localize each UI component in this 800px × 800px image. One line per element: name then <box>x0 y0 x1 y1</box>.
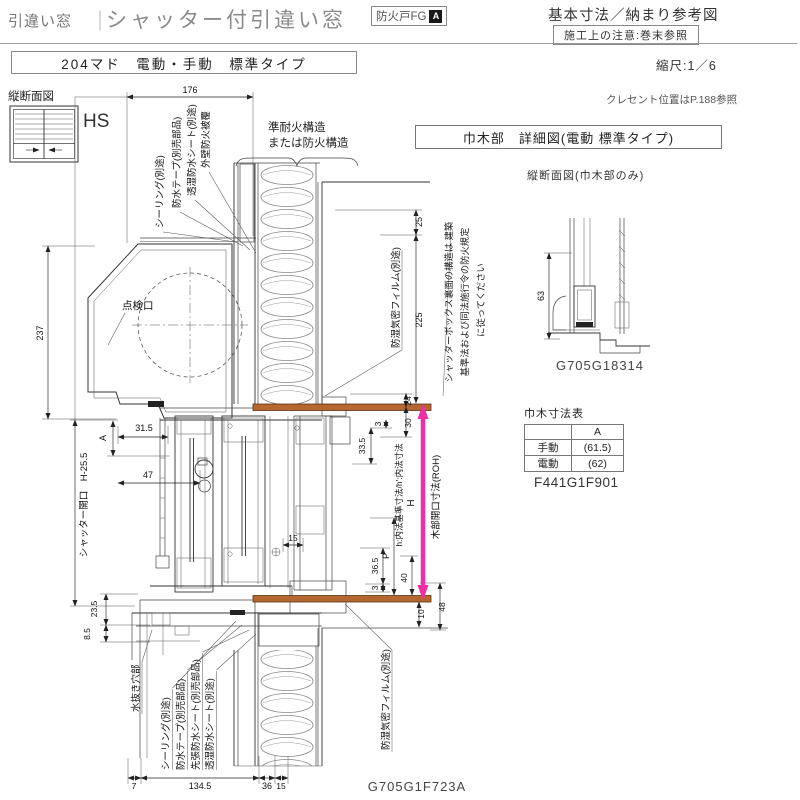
label-sealing-bottom: シーリング(別途) <box>160 697 172 770</box>
outer-sash <box>175 416 213 592</box>
label-presheet-bottom: 先張防水シート(別売部品) <box>190 659 202 770</box>
drawing-canvas: 縦断面図 HS <box>0 0 800 800</box>
warning-line2: 基準法および同法施行令の防火規定 <box>459 228 470 377</box>
label-wall-cover: 外壁防火被覆 <box>200 110 212 168</box>
crescent-lock <box>195 458 213 492</box>
interior-casing-boards <box>253 404 431 602</box>
dim-7: 7 <box>132 781 137 791</box>
label-sheet-bottom: 透湿防水シート(別途) <box>204 678 216 770</box>
label-sealing-top: シーリング(別途) <box>154 155 166 228</box>
dim-h-mark: H <box>406 499 417 506</box>
label-film-top: 防湿気密フィルム(別途) <box>390 247 402 348</box>
dim-3-top: 3 <box>373 421 383 426</box>
dim-15-mid: 15 <box>288 533 298 543</box>
shutter-guide-block <box>148 401 164 407</box>
head-casing-hatch2 <box>330 417 350 444</box>
insulation-upper <box>259 164 316 404</box>
label-tape-top: 防水テープ(別売部品) <box>171 117 183 208</box>
dim-24: 24 <box>403 396 413 406</box>
label-sheet-top: 透湿防水シート(別途) <box>186 104 198 196</box>
shutter-guide-rail <box>156 418 169 568</box>
section-key: 縦断面図 HS <box>8 89 109 162</box>
dim-p-mark: P <box>381 553 391 559</box>
label-drain-hole: 水抜き穴部 <box>130 664 142 712</box>
dim-10: 10 <box>416 609 426 619</box>
inspection-port-label: 点検口 <box>122 299 154 312</box>
detail-sill-profile <box>548 333 650 346</box>
dim-8-5: 8.5 <box>82 628 92 640</box>
label-shutter-opening: シャッター開口 H-25.5 <box>79 453 90 558</box>
screw-icon <box>295 426 299 430</box>
casing-board-bottom <box>253 596 431 603</box>
detail-guide-box <box>574 286 595 327</box>
sill-wood-hatch <box>259 614 319 646</box>
dim-23-5: 23.5 <box>89 600 99 617</box>
warning-line1: シャッターボックス裏面の構造は 建築 <box>443 222 454 382</box>
fastener-icon <box>272 548 280 556</box>
label-film-bottom: 防湿気密フィルム(別途) <box>380 649 392 750</box>
dim-237: 237 <box>35 325 45 340</box>
dim-33-5: 33.5 <box>357 437 367 454</box>
screw-icon <box>228 424 232 428</box>
label-roh: 木部開口寸法(ROH) <box>430 455 442 539</box>
screw-icon <box>228 552 232 556</box>
dim-134-5: 134.5 <box>189 781 212 791</box>
label-inner-dimension-note: h:内法基準寸法/h':内法寸法 <box>394 443 404 546</box>
dim-36: 36 <box>262 781 272 791</box>
dim-63: 63 <box>536 291 546 301</box>
detail-inner-sash <box>615 218 629 334</box>
hs-code: HS <box>83 111 109 132</box>
drawing-code: G705G1F723A <box>368 779 466 794</box>
sill-gasket <box>230 610 245 615</box>
dim-176: 176 <box>182 85 197 95</box>
dim-15-bottom: 15 <box>276 781 286 791</box>
dim-36-5: 36.5 <box>370 557 380 574</box>
shutter-box: 点検口 <box>88 238 256 568</box>
dim-40: 40 <box>399 573 409 583</box>
window-frame <box>160 397 350 592</box>
warning-line3: に従ってください <box>475 263 486 337</box>
wall-section-lower <box>234 612 448 766</box>
dim-a-mark: A <box>98 435 108 441</box>
lintel-wood-hatch <box>240 164 254 242</box>
dim-25: 25 <box>414 217 424 227</box>
dim-3-bottom: 3 <box>370 585 380 590</box>
insulation-lower <box>259 650 316 766</box>
catalog-page: 引違い窓 ｜ シャッター付引違い窓 防火戸FG A 基本寸法／納まり参考図 施工… <box>0 0 800 800</box>
label-tape-bottom: 防水テープ(別売部品) <box>175 679 187 770</box>
interior-casing-frame <box>294 416 332 590</box>
wall-note-line1: 準耐火構造 <box>268 120 326 134</box>
shutter-box-warning-note: シャッターボックス裏面の構造は 建築 基準法および同法施行令の防火規定 に従って… <box>443 222 486 396</box>
dim-48: 48 <box>437 602 447 612</box>
opening-height-arrow <box>418 404 429 601</box>
inner-sash <box>222 416 265 586</box>
dim-225: 225 <box>414 312 424 327</box>
dim-47: 47 <box>143 470 153 480</box>
wall-note-line2: または防火構造 <box>268 136 349 150</box>
section-key-label: 縦断面図 <box>8 89 54 103</box>
dim-30: 30 <box>403 418 413 428</box>
dim-31-5: 31.5 <box>135 423 153 433</box>
main-section-drawing: 点検口 <box>35 85 466 794</box>
detail-drawing-code: G705G18314 <box>556 358 644 373</box>
baseboard-detail-drawing: 63 G705G18314 シャッターボックス裏面の構造は 建築 基準法および同… <box>443 218 650 396</box>
